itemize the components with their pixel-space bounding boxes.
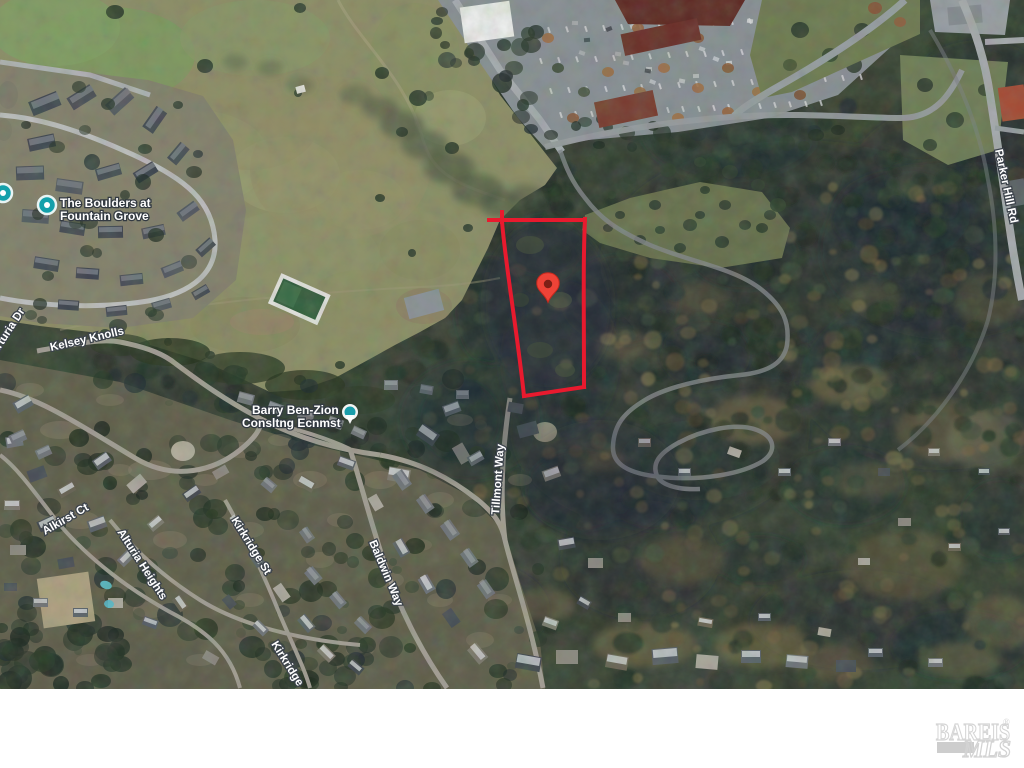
svg-text:®: ® bbox=[1003, 717, 1010, 727]
svg-text:Fountain Grove: Fountain Grove bbox=[60, 209, 149, 223]
svg-text:Barry Ben-Zion: Barry Ben-Zion bbox=[252, 403, 339, 417]
svg-text:Consltng Ecnmst: Consltng Ecnmst bbox=[242, 416, 341, 430]
svg-text:The Boulders at: The Boulders at bbox=[60, 196, 151, 210]
svg-text:MLS: MLS bbox=[962, 737, 1011, 763]
